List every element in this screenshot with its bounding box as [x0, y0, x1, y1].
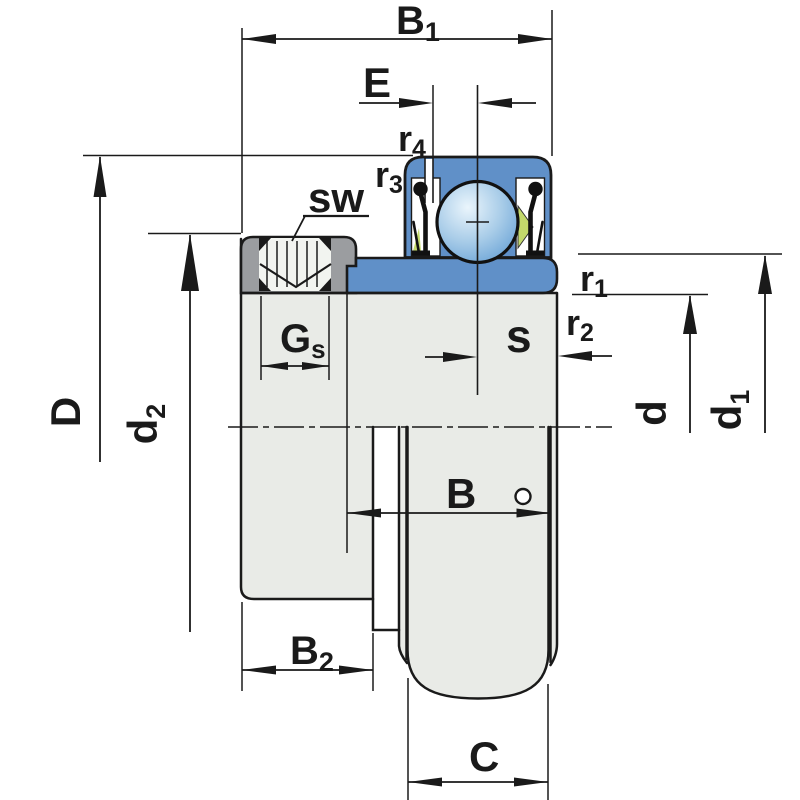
label-C: C: [469, 733, 499, 780]
inner-ring: [347, 258, 557, 293]
lubrication-hole: [516, 489, 531, 504]
label-s: s: [506, 310, 532, 362]
label-sw: sw: [308, 174, 364, 221]
label-D: D: [42, 397, 89, 427]
label-E: E: [363, 59, 391, 106]
technical-drawing-page: B1 E r4 r3 sw Gs D d2 s r1 r2 d d1 B B2 …: [0, 0, 800, 800]
label-B: B: [446, 470, 476, 517]
label-d: d: [628, 400, 675, 426]
lubrication-slot: [425, 158, 433, 203]
hex-socket: [259, 238, 331, 291]
bearing-dimension-drawing: B1 E r4 r3 sw Gs D d2 s r1 r2 d d1 B B2 …: [0, 0, 800, 800]
